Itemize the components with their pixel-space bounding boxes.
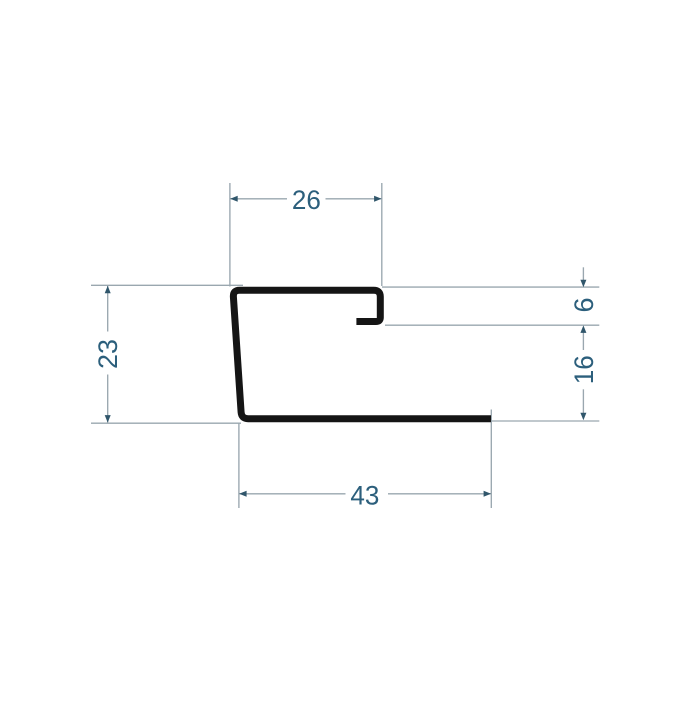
- svg-text:16: 16: [569, 355, 599, 384]
- svg-text:43: 43: [350, 480, 379, 510]
- svg-text:26: 26: [292, 185, 321, 215]
- svg-text:6: 6: [569, 297, 599, 312]
- svg-text:23: 23: [93, 339, 123, 369]
